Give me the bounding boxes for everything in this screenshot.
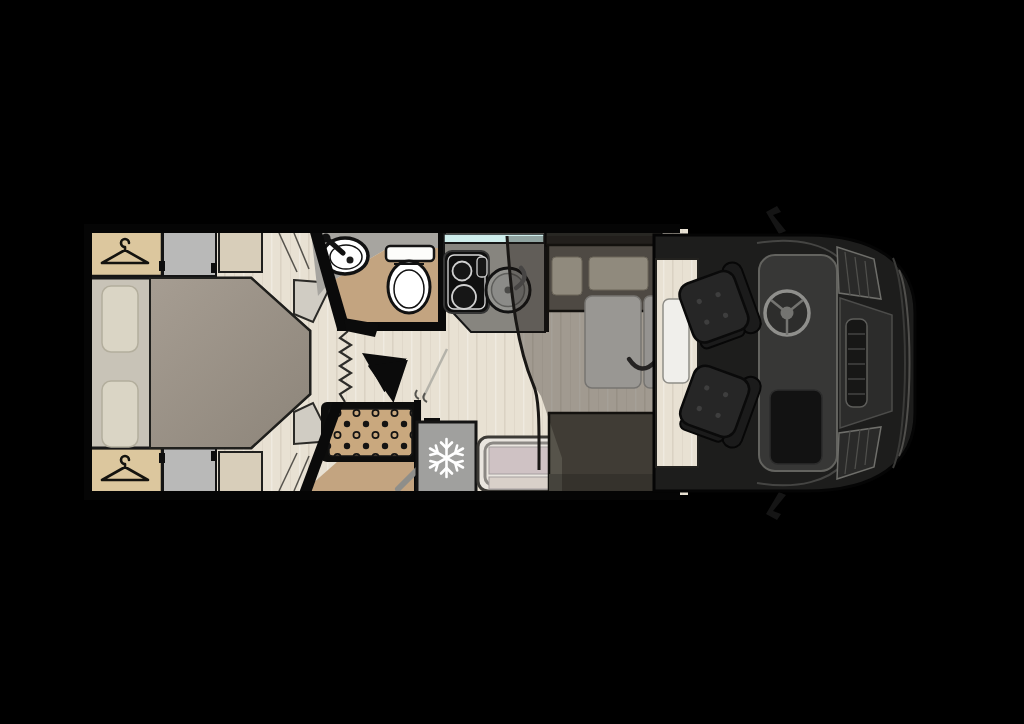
cabinet-top xyxy=(163,231,216,276)
cabinet-bottom xyxy=(163,448,216,493)
toilet-cistern xyxy=(386,246,434,261)
cabinet-handle xyxy=(211,263,217,273)
burner-small xyxy=(453,262,472,281)
pillow-top xyxy=(102,286,138,352)
entry-door-panel xyxy=(489,447,553,474)
shelf-top xyxy=(219,231,262,272)
wall-left xyxy=(84,224,92,500)
wall-bottom xyxy=(84,491,680,500)
basin-drain xyxy=(347,257,354,264)
cabinet-handle xyxy=(159,261,165,271)
wall-top xyxy=(84,224,680,233)
shower-tray xyxy=(329,409,412,456)
cabinet-handle xyxy=(211,451,217,461)
cabinet-handle xyxy=(159,453,165,463)
motorhome-floorplan: ❄ xyxy=(0,0,1024,724)
dashboard-block xyxy=(770,390,822,464)
shelf-bottom xyxy=(219,452,262,493)
floorplan-canvas: ❄ xyxy=(0,0,1024,724)
entry-step xyxy=(489,477,553,489)
cab-area xyxy=(654,206,915,520)
burner-large xyxy=(452,285,476,309)
hob-knob-panel xyxy=(477,257,487,277)
pillow-bottom xyxy=(102,381,138,447)
